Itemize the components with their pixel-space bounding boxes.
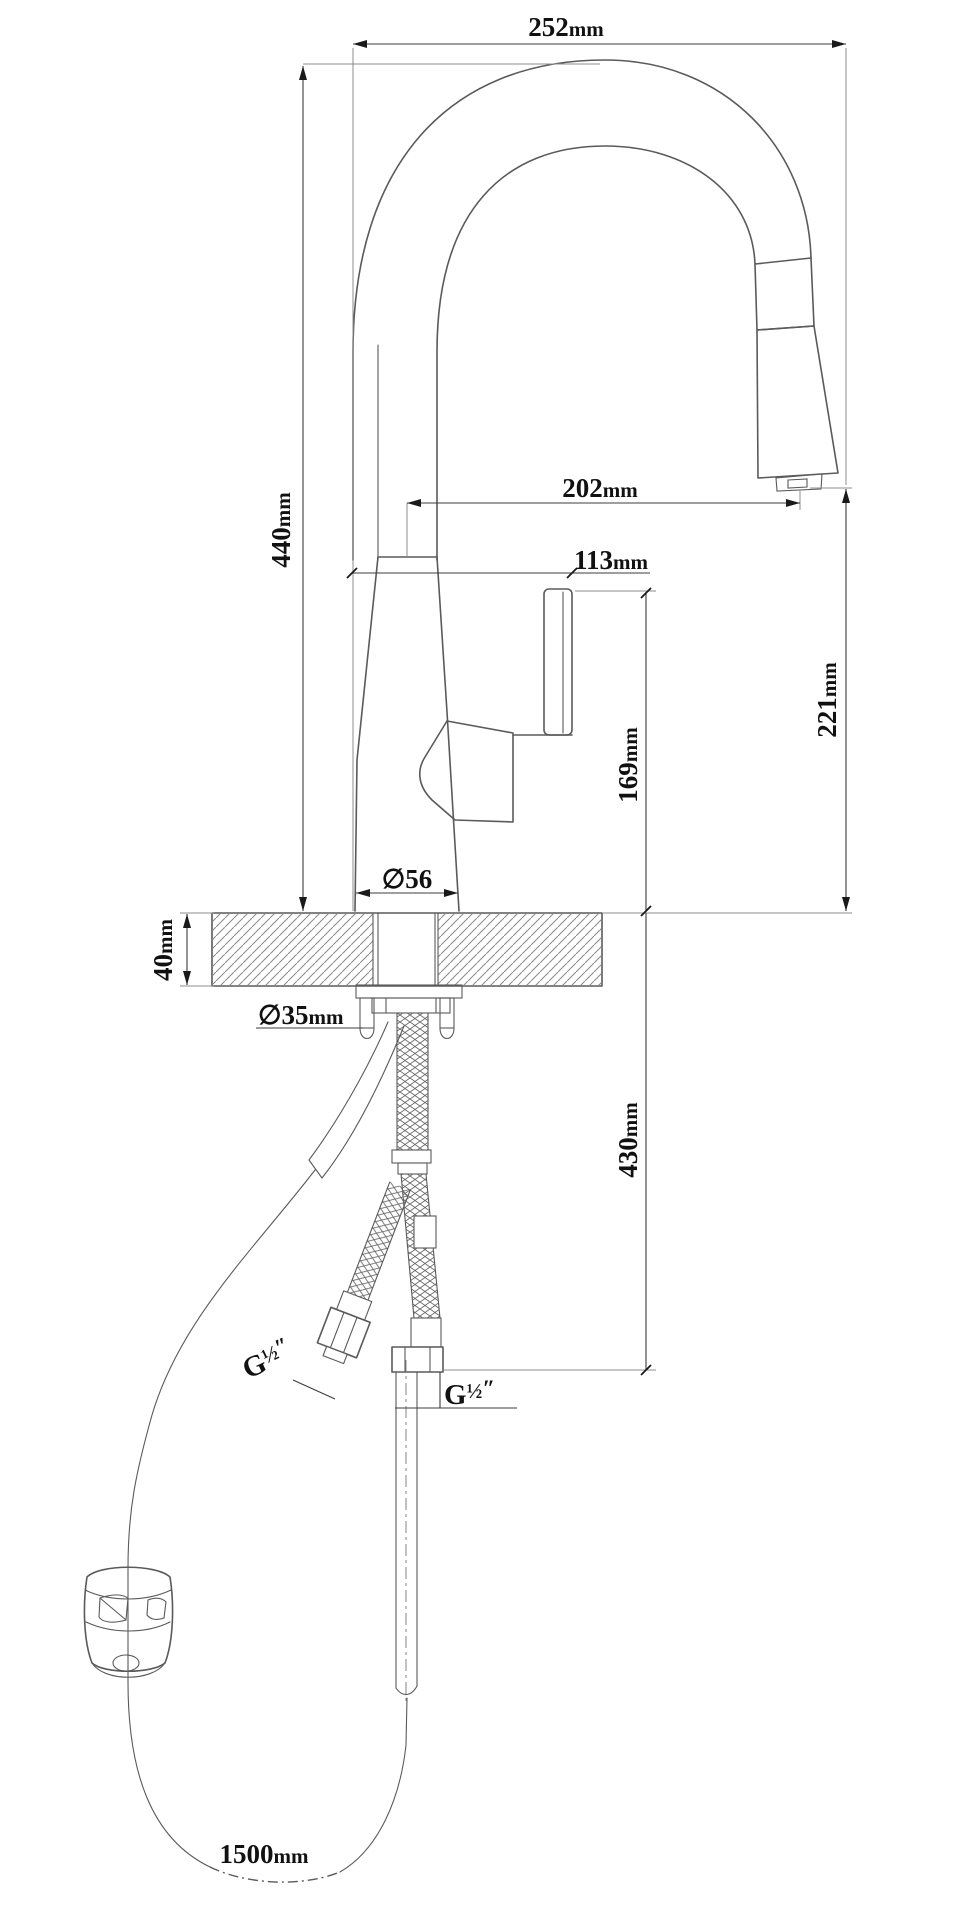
spray-hose-curve-left	[128, 1170, 315, 1867]
faucet-shank	[378, 913, 435, 985]
cone-left-edge	[355, 557, 378, 911]
outlet-pipe-edges	[396, 1372, 417, 1688]
end-hex-nut	[392, 1347, 443, 1372]
countertop-section	[212, 913, 602, 986]
dim-overall-width-label: 252mm	[528, 12, 604, 42]
dimension-base-diameter: ∅56	[356, 864, 458, 897]
thread-right-label: G½″	[444, 1376, 495, 1411]
dim-hole-diameter-label: ∅35mm	[258, 1000, 344, 1030]
spray-hose-curve-right	[340, 1698, 407, 1872]
mounting-hole-edges	[373, 913, 438, 986]
weight-slot-right	[147, 1598, 166, 1619]
dimension-overall-height: 440mm	[266, 64, 600, 911]
dim-hose-drop-label: 430mm	[613, 1102, 643, 1178]
supply-hose-branch	[314, 1178, 420, 1367]
end-fitting-collar	[411, 1318, 441, 1347]
dimension-hole-diameter: ∅35mm	[256, 1000, 363, 1030]
bracket-detail-lines	[386, 998, 436, 1013]
dim-base-diameter-label: ∅56	[382, 864, 433, 894]
spray-head-body	[757, 326, 838, 478]
hose-coupling-b	[398, 1163, 427, 1174]
dimension-hose-length: 1500mm	[220, 1839, 309, 1869]
mounting-bracket	[372, 998, 450, 1013]
dim-counter-thickness-label: 40mm	[148, 919, 178, 981]
drawing-sheet: 252mm 440mm 202mm 113mm 221mm 169mm 430m…	[0, 0, 966, 1928]
handle-lever-bar	[544, 589, 572, 735]
mounting-flange	[356, 985, 462, 998]
dim-handle-height-label: 169mm	[613, 727, 643, 803]
faucet-base-cone	[355, 557, 459, 911]
dim-hose-length-label: 1500mm	[220, 1839, 309, 1869]
spray-hose-curve-bottom-dashdot	[210, 1867, 340, 1882]
thread-left-label: G½″	[236, 1332, 297, 1385]
weight-bottom-hole	[113, 1655, 139, 1671]
dimension-handle-offset: 113mm	[347, 545, 650, 578]
branch-braid-fill	[346, 1182, 410, 1304]
spray-outlet-pipe	[396, 1360, 417, 1704]
pipe-end-break	[396, 1686, 417, 1695]
counter-hatch-right	[438, 914, 601, 985]
dimension-handle-height: 169mm	[575, 588, 656, 916]
spray-head-sleeve	[755, 258, 814, 330]
counter-hatch-left	[213, 914, 373, 985]
faucet-technical-drawing: 252mm 440mm 202mm 113mm 221mm 169mm 430m…	[0, 0, 966, 1928]
hose-coupling-a	[392, 1150, 431, 1163]
thread-label-right: G½″	[395, 1372, 517, 1411]
dimension-counter-thickness: 40mm	[148, 913, 214, 986]
dim-spout-reach-label: 202mm	[562, 473, 638, 503]
dim-handle-offset-label: 113mm	[574, 545, 649, 575]
handle-base-boss	[420, 721, 513, 822]
braided-hose-upper	[397, 1013, 428, 1150]
spray-head	[755, 258, 838, 491]
dim-spout-height-label: 221mm	[812, 662, 842, 738]
hose-clip	[414, 1216, 436, 1248]
cone-right-edge	[437, 557, 459, 911]
aerator-outlet	[788, 479, 807, 488]
handle	[420, 589, 572, 822]
dim-overall-height-label: 440mm	[266, 492, 296, 568]
spray-hose-loop	[128, 1022, 407, 1882]
thread-left-leader	[293, 1380, 335, 1399]
